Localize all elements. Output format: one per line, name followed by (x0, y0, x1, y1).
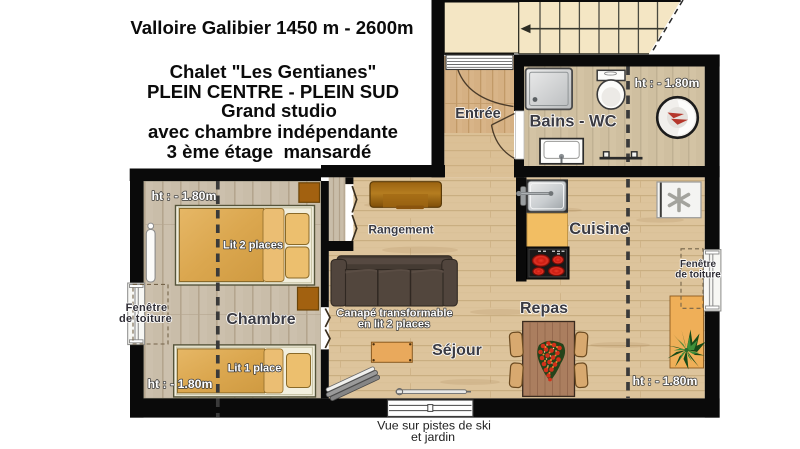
svg-text:ht : - 1.80m: ht : - 1.80m (148, 377, 213, 391)
svg-text:Cuisine: Cuisine (569, 220, 629, 238)
svg-text:ht : - 1.80m: ht : - 1.80m (152, 189, 217, 203)
svg-text:Fenêtre: Fenêtre (680, 259, 717, 270)
svg-text:avec chambre indépendante: avec chambre indépendante (148, 121, 398, 142)
svg-text:en lit 2 places: en lit 2 places (358, 319, 430, 331)
svg-text:Chalet "Les Gentianes": Chalet "Les Gentianes" (170, 61, 377, 82)
svg-text:Valloire Galibier 1450 m - 260: Valloire Galibier 1450 m - 2600m (130, 17, 413, 38)
svg-text:Lit 1 place: Lit 1 place (228, 363, 282, 375)
svg-text:de toiture: de toiture (119, 313, 172, 325)
svg-text:Rangement: Rangement (368, 223, 433, 237)
svg-text:et jardin: et jardin (411, 430, 455, 444)
svg-text:ht : - 1.80m: ht : - 1.80m (633, 374, 698, 388)
svg-text:Grand studio: Grand studio (221, 100, 337, 121)
svg-text:Bains - WC: Bains - WC (529, 113, 616, 131)
svg-text:ht : - 1.80m: ht : - 1.80m (635, 76, 700, 90)
svg-text:de toiture: de toiture (675, 270, 721, 281)
svg-text:3 ème étage mansardé: 3 ème étage mansardé (167, 141, 372, 162)
svg-text:Chambre: Chambre (226, 311, 295, 328)
svg-text:Séjour: Séjour (432, 342, 482, 359)
svg-text:Lit 2 places: Lit 2 places (223, 240, 283, 252)
svg-text:Entrée: Entrée (455, 106, 500, 122)
svg-text:Repas: Repas (520, 300, 568, 317)
